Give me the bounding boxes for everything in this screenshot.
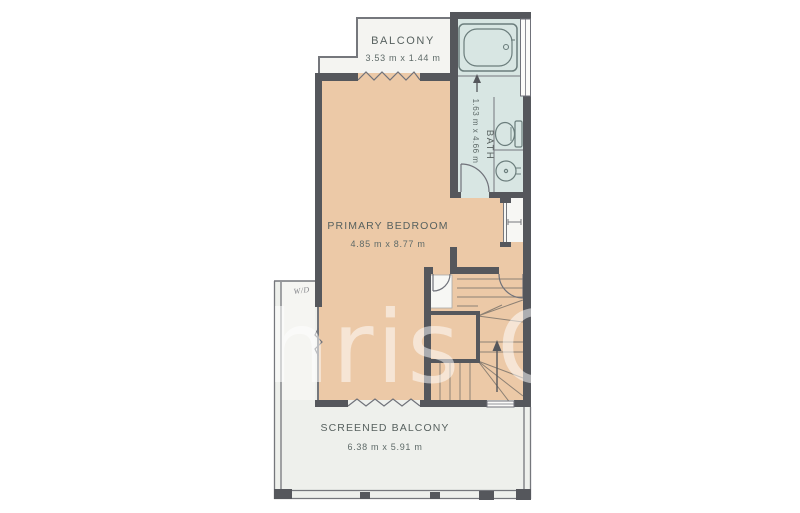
wall-bath-top [450, 12, 531, 19]
wall-stair-top-mid [450, 267, 499, 274]
screen-post-1 [274, 489, 292, 499]
bath-right-window [521, 19, 531, 96]
screen-post-3 [430, 492, 440, 499]
bath-dims: 1.63 m x 4.66 m [471, 99, 480, 164]
wall-bedroom-left [315, 73, 322, 307]
primary-bedroom-label: PRIMARY BEDROOM [327, 220, 448, 232]
floorplan-svg: hris O BALCONY 3.53 m x 1.44 m BATH 1.63… [0, 0, 800, 513]
wall-bath-bottom-left [450, 192, 461, 198]
wall-closet-stub-top [500, 198, 511, 203]
wall-bath-bottom-right [489, 192, 531, 198]
screen-post-2 [360, 492, 370, 499]
wall-bath-left [450, 19, 458, 192]
screened-balcony-label: SCREENED BALCONY [320, 422, 449, 434]
watermark: hris O [266, 289, 579, 406]
wall-bedroom-top-right [420, 73, 450, 81]
screen-post-5 [516, 489, 531, 500]
wall-closet-stub-bottom [500, 242, 511, 247]
screen-post-4 [479, 491, 494, 500]
primary-bedroom-dims: 4.85 m x 8.77 m [350, 239, 425, 249]
screened-balcony-dims: 6.38 m x 5.91 m [347, 442, 422, 452]
balcony-dims: 3.53 m x 1.44 m [365, 53, 440, 63]
bath-label: BATH [484, 130, 495, 160]
floor-plan-canvas: hris O BALCONY 3.53 m x 1.44 m BATH 1.63… [0, 0, 800, 513]
balcony-label: BALCONY [371, 35, 435, 47]
